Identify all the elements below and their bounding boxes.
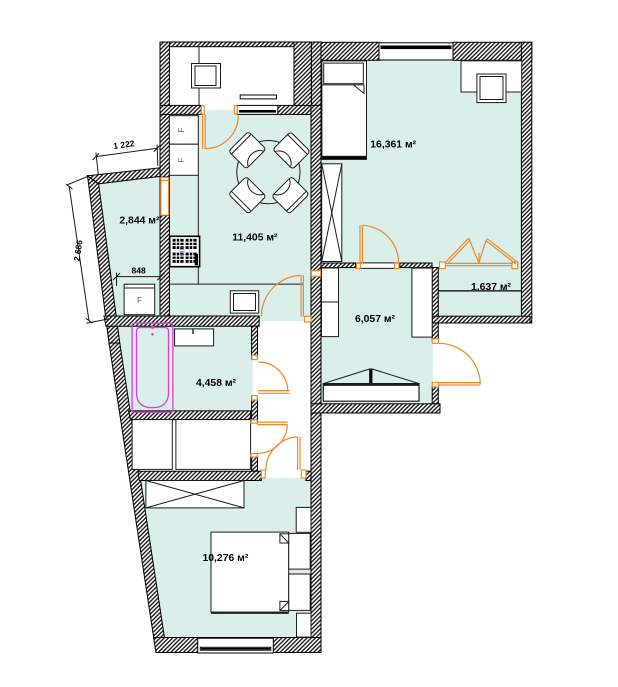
svg-text:16,361 м²: 16,361 м²	[370, 140, 416, 151]
svg-text:11,405 м²: 11,405 м²	[232, 232, 278, 243]
svg-text:ПЛ: ПЛ	[180, 247, 187, 256]
svg-text:2,844 м²: 2,844 м²	[119, 216, 160, 227]
svg-text:4,458 м²: 4,458 м²	[196, 378, 237, 389]
svg-text:6,057 м²: 6,057 м²	[355, 314, 396, 325]
svg-text:F: F	[177, 127, 186, 132]
svg-text:10,276 м²: 10,276 м²	[202, 553, 248, 564]
svg-text:F: F	[137, 296, 142, 305]
svg-text:F: F	[177, 157, 186, 162]
svg-text:848: 848	[132, 266, 146, 276]
svg-text:1,637 м²: 1,637 м²	[471, 282, 512, 293]
